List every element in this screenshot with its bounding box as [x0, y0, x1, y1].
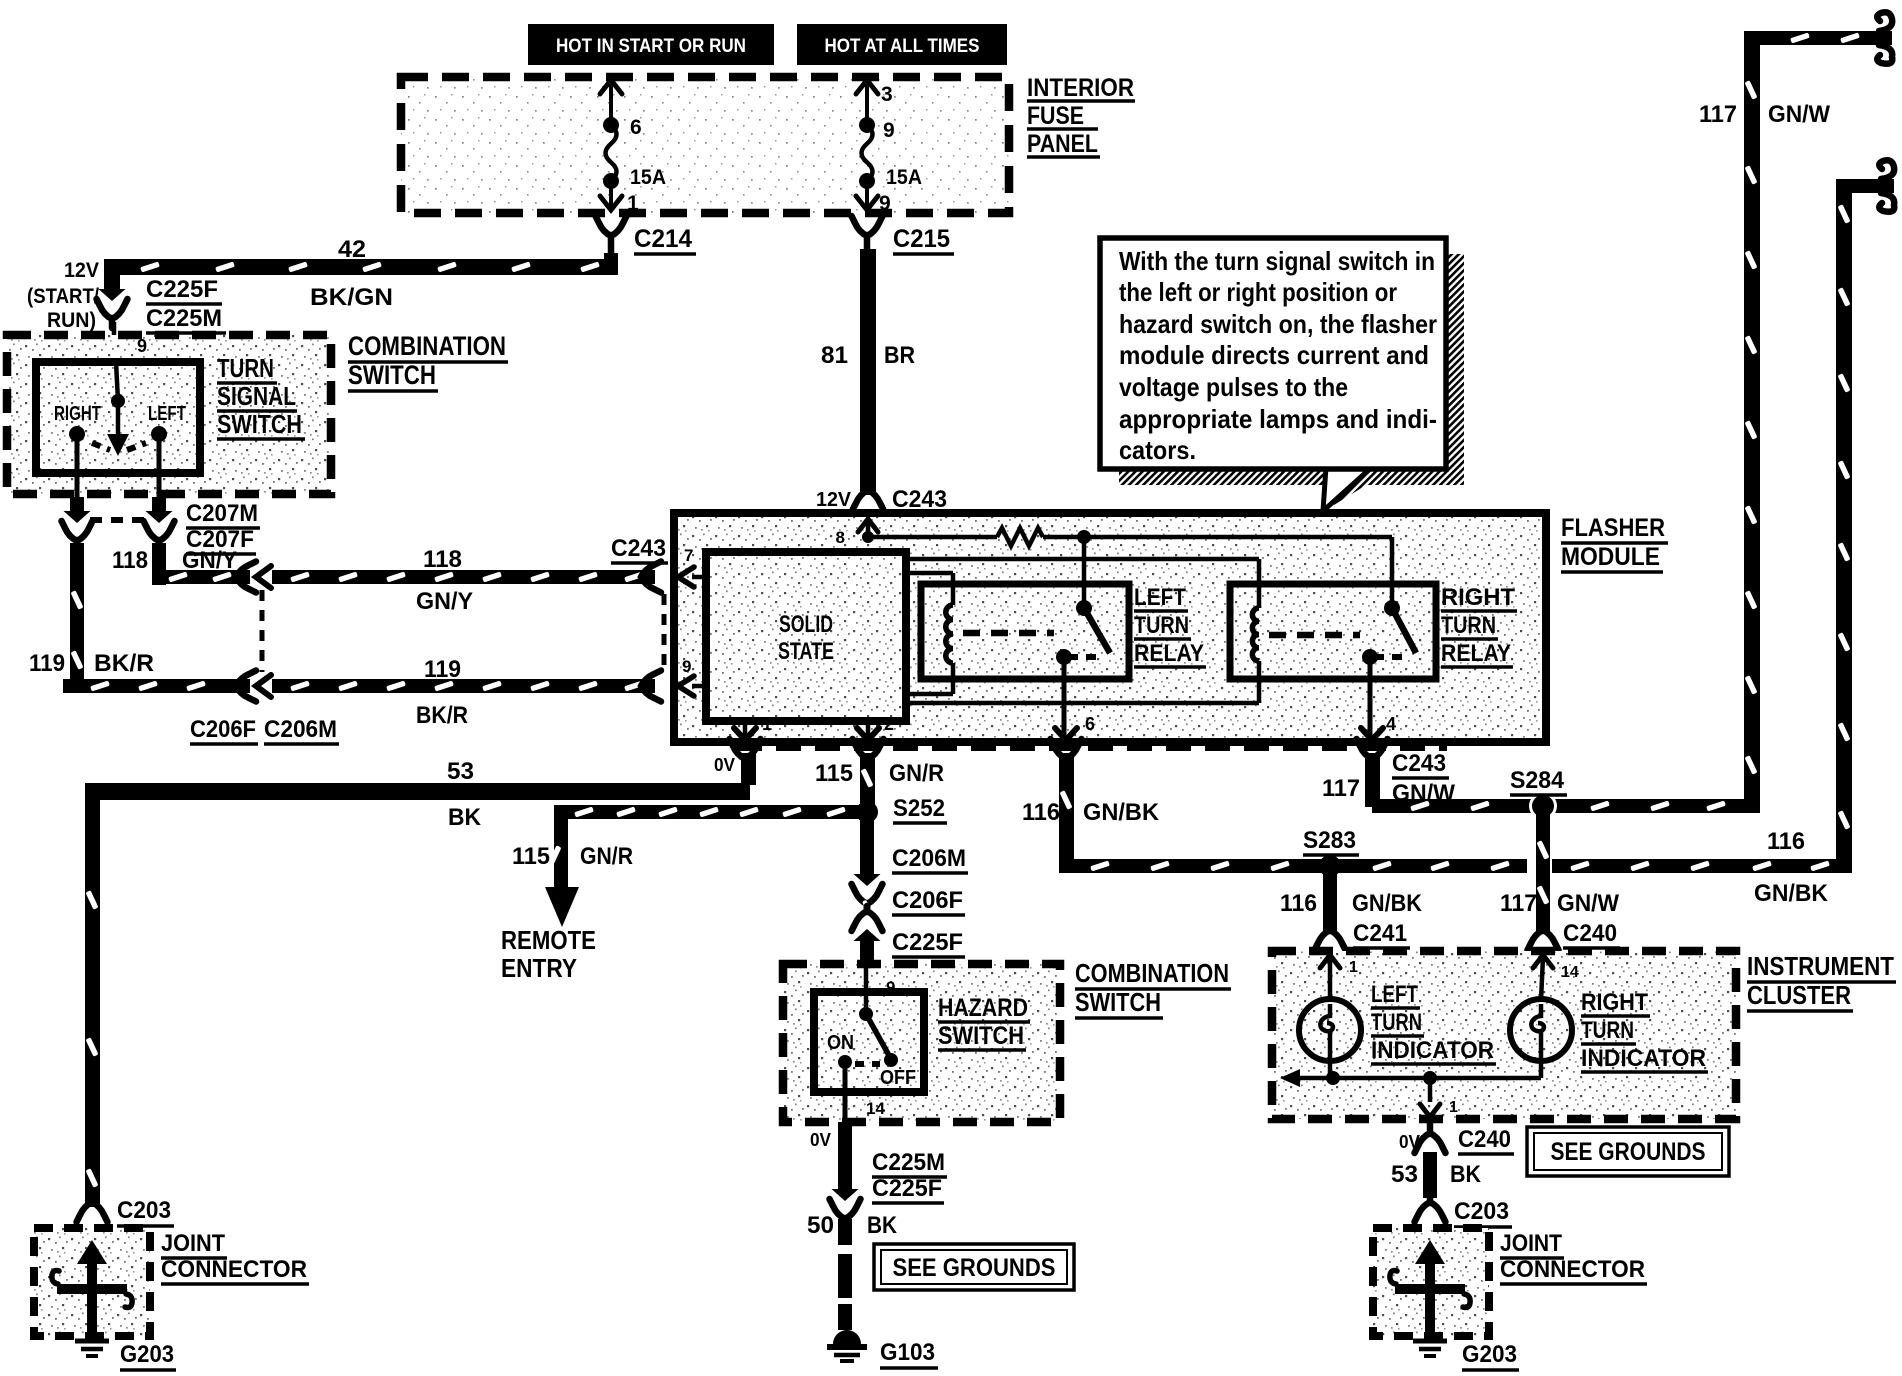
- svg-text:C240: C240: [1458, 1126, 1511, 1153]
- svg-text:RIGHT: RIGHT: [1441, 584, 1515, 611]
- svg-text:GN/R: GN/R: [580, 843, 633, 870]
- svg-text:117: 117: [1500, 890, 1537, 917]
- svg-text:CONNECTOR: CONNECTOR: [161, 1256, 307, 1283]
- svg-text:SOLID: SOLID: [779, 611, 833, 638]
- svg-text:ENTRY: ENTRY: [501, 953, 577, 983]
- svg-text:C243: C243: [611, 535, 666, 562]
- svg-text:INTERIOR: INTERIOR: [1027, 74, 1134, 102]
- svg-text:0V: 0V: [714, 755, 735, 775]
- svg-text:SWITCH: SWITCH: [348, 360, 436, 390]
- svg-text:G103: G103: [880, 1339, 935, 1366]
- svg-text:115: 115: [512, 843, 550, 870]
- svg-text:8: 8: [836, 528, 845, 547]
- svg-text:C203: C203: [117, 1197, 171, 1224]
- svg-text:C225M: C225M: [872, 1149, 945, 1176]
- svg-text:PANEL: PANEL: [1027, 130, 1098, 158]
- svg-text:6: 6: [1085, 714, 1095, 734]
- svg-text:C225F: C225F: [892, 929, 963, 956]
- svg-text:module directs current and: module directs current and: [1119, 340, 1429, 370]
- svg-text:SWITCH: SWITCH: [217, 409, 302, 439]
- svg-text:C206F: C206F: [892, 887, 963, 914]
- svg-text:115: 115: [815, 760, 853, 787]
- svg-text:9: 9: [682, 657, 691, 676]
- svg-text:SEE GROUNDS: SEE GROUNDS: [1551, 1138, 1706, 1166]
- svg-text:C206M: C206M: [892, 845, 966, 872]
- svg-text:TURN: TURN: [1371, 1009, 1422, 1036]
- svg-text:C215: C215: [893, 225, 950, 253]
- svg-text:RELAY: RELAY: [1441, 640, 1511, 667]
- svg-text:BK/GN: BK/GN: [310, 284, 393, 311]
- svg-text:GN/Y: GN/Y: [182, 547, 237, 574]
- svg-text:0V: 0V: [810, 1130, 831, 1150]
- svg-text:117: 117: [1699, 101, 1737, 128]
- svg-text:GN/BK: GN/BK: [1083, 799, 1160, 826]
- svg-text:14: 14: [1561, 964, 1579, 981]
- svg-text:53: 53: [447, 758, 474, 785]
- svg-text:S284: S284: [1510, 767, 1565, 794]
- svg-text:ON: ON: [827, 1032, 854, 1054]
- svg-text:FUSE: FUSE: [1027, 102, 1084, 130]
- svg-text:C206M: C206M: [264, 716, 337, 743]
- svg-text:SIGNAL: SIGNAL: [217, 381, 296, 411]
- svg-text:GN/Y: GN/Y: [416, 588, 473, 615]
- svg-text:2: 2: [884, 714, 894, 734]
- svg-text:(START/: (START/: [27, 285, 99, 308]
- svg-text:With the turn signal switch in: With the turn signal switch in: [1119, 246, 1435, 276]
- svg-text:C203: C203: [1454, 1198, 1509, 1225]
- svg-text:FLASHER: FLASHER: [1561, 514, 1665, 542]
- svg-text:6: 6: [630, 116, 642, 139]
- svg-text:7: 7: [684, 546, 693, 565]
- svg-text:JOINT: JOINT: [1500, 1230, 1562, 1257]
- svg-text:LEFT: LEFT: [148, 403, 186, 425]
- svg-text:COMBINATION: COMBINATION: [1075, 958, 1229, 988]
- svg-text:S252: S252: [893, 795, 945, 822]
- svg-text:42: 42: [338, 236, 366, 263]
- svg-text:S283: S283: [1303, 827, 1356, 854]
- svg-text:HAZARD: HAZARD: [938, 994, 1028, 1022]
- svg-text:C214: C214: [634, 225, 692, 253]
- svg-text:MODULE: MODULE: [1561, 543, 1660, 571]
- svg-text:TURN: TURN: [1581, 1017, 1634, 1044]
- svg-text:9: 9: [879, 192, 891, 215]
- svg-text:HOT IN START OR RUN: HOT IN START OR RUN: [556, 36, 746, 57]
- svg-text:3: 3: [881, 83, 893, 106]
- svg-text:C241: C241: [1353, 920, 1407, 947]
- svg-text:14: 14: [866, 1099, 885, 1118]
- svg-text:GN/W: GN/W: [1768, 101, 1830, 128]
- svg-text:INSTRUMENT: INSTRUMENT: [1747, 951, 1894, 981]
- svg-text:1: 1: [1349, 959, 1358, 976]
- svg-text:STATE: STATE: [778, 638, 834, 665]
- svg-text:BK: BK: [448, 804, 482, 831]
- svg-text:50: 50: [807, 1212, 834, 1239]
- svg-text:GN/BK: GN/BK: [1352, 890, 1423, 917]
- svg-text:LEFT: LEFT: [1134, 584, 1186, 611]
- svg-text:116: 116: [1022, 799, 1060, 826]
- svg-text:G203: G203: [1462, 1341, 1517, 1368]
- svg-text:BK/R: BK/R: [416, 702, 468, 729]
- svg-text:HOT AT ALL TIMES: HOT AT ALL TIMES: [825, 36, 980, 57]
- svg-text:CONNECTOR: CONNECTOR: [1500, 1256, 1645, 1283]
- svg-text:SWITCH: SWITCH: [938, 1022, 1024, 1050]
- svg-text:BR: BR: [884, 342, 915, 369]
- svg-text:LEFT: LEFT: [1371, 981, 1418, 1008]
- svg-text:1: 1: [762, 714, 772, 734]
- svg-text:C207M: C207M: [186, 500, 258, 527]
- svg-text:INDICATOR: INDICATOR: [1371, 1037, 1494, 1064]
- svg-text:BK: BK: [1450, 1161, 1482, 1188]
- svg-text:BK/R: BK/R: [94, 650, 154, 677]
- svg-text:118: 118: [423, 546, 462, 573]
- svg-text:GN/R: GN/R: [889, 760, 944, 787]
- svg-text:OFF: OFF: [880, 1067, 916, 1089]
- svg-text:BK: BK: [867, 1212, 898, 1239]
- svg-text:9: 9: [886, 978, 895, 997]
- svg-text:C243: C243: [892, 486, 947, 513]
- svg-text:TURN: TURN: [1134, 612, 1189, 639]
- svg-text:116: 116: [1767, 828, 1805, 855]
- svg-text:the left or right position or: the left or right position or: [1119, 277, 1397, 307]
- svg-text:SEE GROUNDS: SEE GROUNDS: [893, 1254, 1056, 1282]
- svg-text:118: 118: [112, 547, 148, 574]
- svg-text:CLUSTER: CLUSTER: [1747, 980, 1851, 1010]
- svg-text:voltage pulses to the: voltage pulses to the: [1119, 372, 1348, 402]
- svg-text:C243: C243: [1392, 750, 1446, 777]
- svg-text:117: 117: [1322, 775, 1360, 802]
- svg-text:4: 4: [1386, 714, 1396, 734]
- svg-text:12V: 12V: [816, 489, 852, 511]
- svg-text:RIGHT: RIGHT: [1581, 989, 1648, 1016]
- svg-text:cators.: cators.: [1119, 435, 1196, 465]
- svg-text:RELAY: RELAY: [1134, 640, 1204, 667]
- svg-text:REMOTE: REMOTE: [501, 925, 596, 955]
- svg-text:15A: 15A: [630, 166, 666, 189]
- svg-text:116: 116: [1280, 890, 1317, 917]
- svg-text:RIGHT: RIGHT: [54, 403, 101, 425]
- svg-text:SWITCH: SWITCH: [1075, 987, 1161, 1017]
- svg-text:0V: 0V: [1399, 1132, 1420, 1152]
- svg-text:appropriate lamps and indi-: appropriate lamps and indi-: [1119, 404, 1437, 434]
- svg-text:9: 9: [137, 336, 147, 356]
- svg-text:TURN: TURN: [1441, 612, 1496, 639]
- svg-text:81: 81: [821, 342, 848, 369]
- svg-text:RUN): RUN): [47, 309, 96, 332]
- svg-text:12V: 12V: [64, 259, 99, 282]
- svg-text:119: 119: [29, 650, 65, 677]
- svg-text:JOINT: JOINT: [161, 1230, 225, 1257]
- svg-text:15A: 15A: [886, 166, 922, 189]
- svg-text:53: 53: [1391, 1161, 1418, 1188]
- svg-text:hazard switch on, the flasher: hazard switch on, the flasher: [1119, 309, 1437, 339]
- svg-text:C225F: C225F: [146, 276, 218, 303]
- svg-text:C225F: C225F: [872, 1175, 942, 1202]
- svg-text:G203: G203: [120, 1341, 174, 1368]
- svg-text:C225M: C225M: [146, 305, 222, 332]
- svg-text:C240: C240: [1563, 920, 1617, 947]
- svg-text:1: 1: [1449, 1099, 1458, 1116]
- svg-text:COMBINATION: COMBINATION: [348, 331, 506, 361]
- svg-text:INDICATOR: INDICATOR: [1581, 1045, 1706, 1072]
- svg-text:9: 9: [883, 119, 895, 142]
- svg-text:GN/W: GN/W: [1557, 890, 1619, 917]
- svg-text:TURN: TURN: [217, 353, 274, 383]
- svg-text:1: 1: [627, 192, 639, 215]
- svg-text:GN/BK: GN/BK: [1754, 880, 1829, 907]
- svg-text:119: 119: [424, 656, 461, 683]
- svg-text:C206F: C206F: [190, 716, 256, 743]
